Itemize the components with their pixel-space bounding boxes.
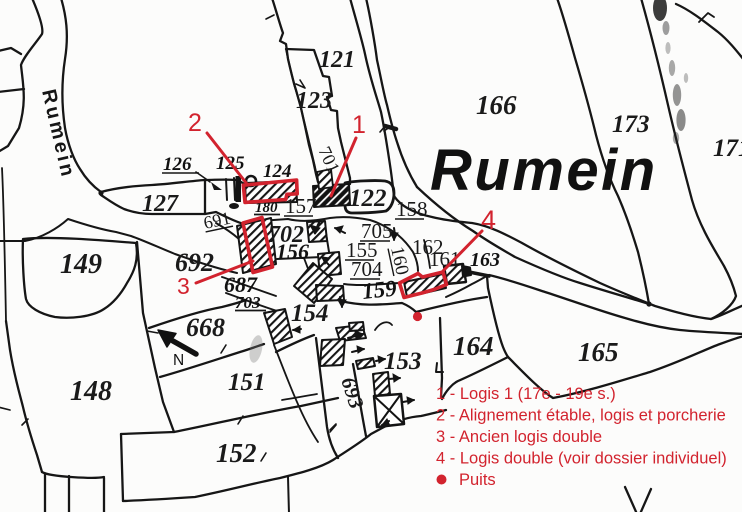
- svg-text:148: 148: [70, 376, 112, 407]
- svg-text:3 - Ancien logis double: 3 - Ancien logis double: [436, 428, 602, 446]
- svg-text:Rumein: Rumein: [430, 138, 658, 203]
- svg-text:122: 122: [349, 185, 387, 212]
- svg-text:166: 166: [476, 90, 517, 120]
- svg-text:126: 126: [163, 154, 192, 175]
- svg-text:N: N: [173, 352, 184, 369]
- svg-text:4: 4: [481, 205, 496, 235]
- svg-text:163: 163: [470, 249, 500, 271]
- svg-text:4 - Logis double (voir dossier: 4 - Logis double (voir dossier individue…: [436, 450, 727, 468]
- svg-text:668: 668: [186, 313, 225, 342]
- svg-text:171: 171: [713, 135, 742, 162]
- svg-text:1: 1: [352, 111, 366, 139]
- svg-text:3: 3: [177, 273, 190, 299]
- svg-text:127: 127: [142, 191, 179, 217]
- svg-text:2: 2: [188, 109, 202, 137]
- svg-text:152: 152: [216, 438, 257, 468]
- svg-text:Puits: Puits: [459, 471, 496, 489]
- svg-text:164: 164: [453, 331, 494, 361]
- svg-text:1 - Logis 1 (17e - 19e s.): 1 - Logis 1 (17e - 19e s.): [436, 385, 616, 403]
- svg-text:703: 703: [235, 293, 261, 312]
- svg-text:158: 158: [396, 197, 428, 221]
- svg-text:159: 159: [361, 275, 398, 304]
- svg-text:157: 157: [285, 194, 317, 218]
- svg-text:124: 124: [263, 161, 292, 182]
- svg-text:123: 123: [296, 88, 332, 114]
- svg-text:153: 153: [384, 348, 422, 375]
- svg-text:165: 165: [578, 337, 619, 367]
- svg-text:121: 121: [319, 47, 355, 73]
- svg-text:149: 149: [60, 249, 102, 280]
- svg-text:156: 156: [276, 239, 309, 264]
- svg-text:2 - Alignement étable, logis e: 2 - Alignement étable, logis et porcheri…: [436, 407, 726, 425]
- svg-text:154: 154: [291, 300, 329, 327]
- svg-text:151: 151: [228, 369, 266, 396]
- svg-text:173: 173: [612, 111, 650, 138]
